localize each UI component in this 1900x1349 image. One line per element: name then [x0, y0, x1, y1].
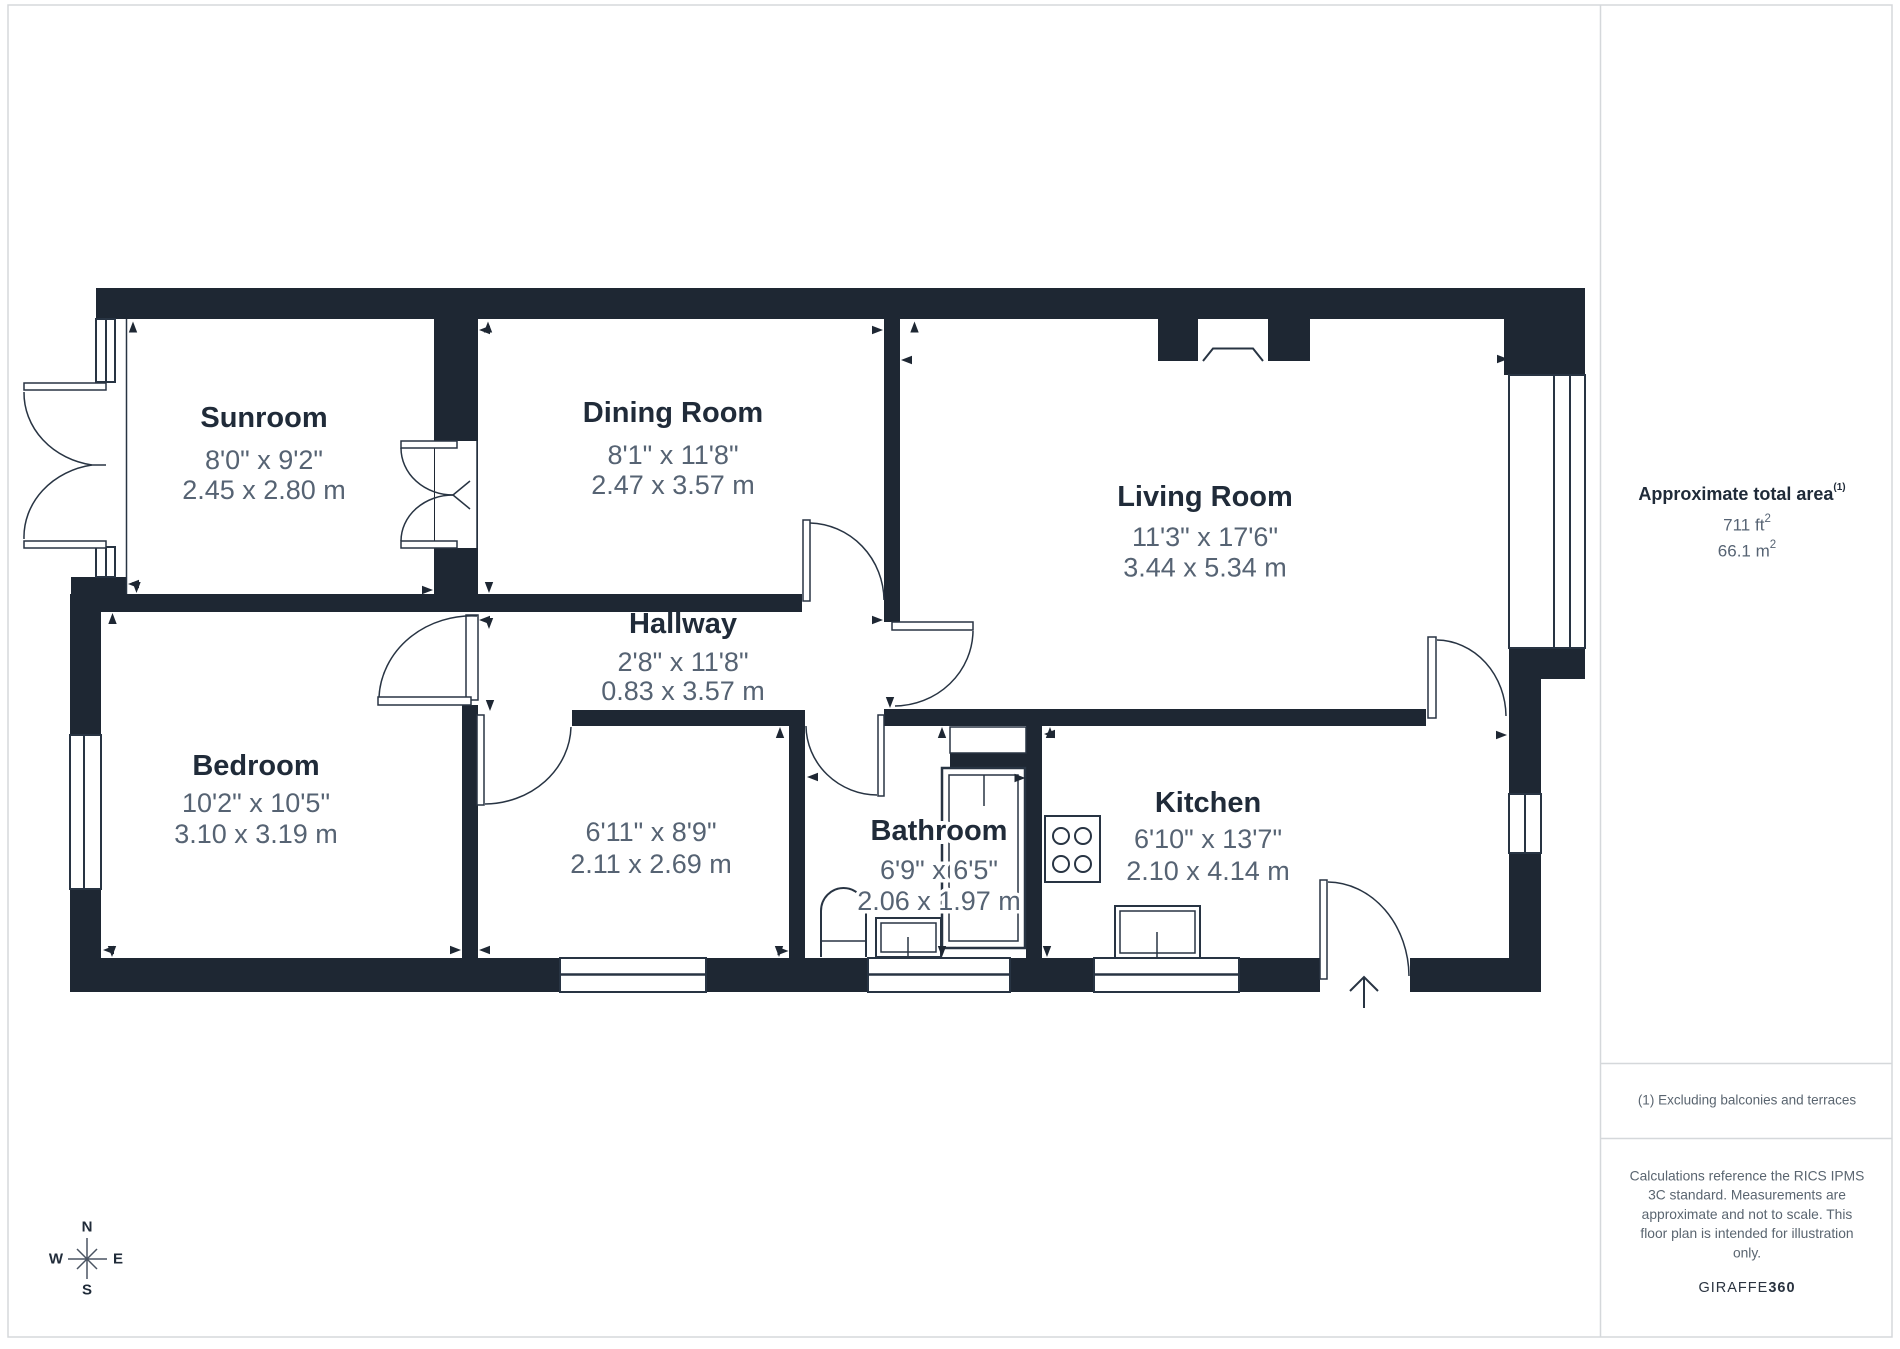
svg-text:66.1 m2: 66.1 m2	[1718, 539, 1776, 561]
svg-text:Approximate total area(1): Approximate total area(1)	[1638, 482, 1845, 505]
svg-text:8'1" x 11'8": 8'1" x 11'8"	[607, 440, 738, 470]
svg-text:Dining Room: Dining Room	[583, 397, 763, 429]
svg-text:Kitchen: Kitchen	[1155, 787, 1261, 819]
svg-text:GIRAFFE360: GIRAFFE360	[1698, 1280, 1795, 1296]
svg-text:2.47 x 3.57 m: 2.47 x 3.57 m	[591, 470, 755, 500]
svg-text:11'3" x 17'6": 11'3" x 17'6"	[1132, 522, 1278, 552]
svg-text:6'11" x 8'9": 6'11" x 8'9"	[585, 817, 716, 847]
svg-text:Calculations reference the RIC: Calculations reference the RICS IPMS	[1630, 1169, 1865, 1184]
svg-text:only.: only.	[1733, 1245, 1761, 1260]
svg-text:E: E	[113, 1251, 123, 1268]
svg-text:W: W	[49, 1251, 64, 1268]
svg-text:Sunroom: Sunroom	[200, 402, 327, 434]
svg-text:8'0" x 9'2": 8'0" x 9'2"	[205, 445, 323, 475]
svg-text:3.10 x 3.19 m: 3.10 x 3.19 m	[174, 819, 338, 849]
svg-text:S: S	[82, 1282, 92, 1299]
svg-text:2.06 x 1.97 m: 2.06 x 1.97 m	[857, 886, 1021, 916]
svg-text:3C standard. Measurements are: 3C standard. Measurements are	[1648, 1188, 1846, 1203]
svg-text:Living Room: Living Room	[1117, 481, 1293, 513]
svg-text:3.44 x 5.34 m: 3.44 x 5.34 m	[1123, 553, 1287, 583]
svg-text:approximate and not to scale.: approximate and not to scale. This	[1642, 1207, 1853, 1222]
svg-text:N: N	[82, 1219, 93, 1236]
svg-text:Bedroom: Bedroom	[192, 750, 319, 782]
svg-text:2'8" x 11'8": 2'8" x 11'8"	[617, 647, 748, 677]
svg-text:2.11 x 2.69 m: 2.11 x 2.69 m	[570, 849, 732, 879]
svg-text:2.10 x 4.14 m: 2.10 x 4.14 m	[1126, 856, 1290, 886]
svg-text:6'9" x 6'5": 6'9" x 6'5"	[880, 855, 998, 885]
svg-text:711 ft2: 711 ft2	[1723, 513, 1771, 535]
svg-text:(1) Excluding balconies and te: (1) Excluding balconies and terraces	[1638, 1093, 1857, 1108]
svg-text:Bathroom: Bathroom	[871, 815, 1008, 847]
svg-text:0.83 x 3.57 m: 0.83 x 3.57 m	[601, 676, 765, 706]
svg-text:Hallway: Hallway	[629, 608, 737, 640]
svg-text:10'2" x 10'5": 10'2" x 10'5"	[182, 788, 330, 818]
svg-text:6'10" x 13'7": 6'10" x 13'7"	[1134, 824, 1282, 854]
svg-text:floor plan is intended for ill: floor plan is intended for illustration	[1640, 1226, 1853, 1241]
svg-text:2.45 x 2.80 m: 2.45 x 2.80 m	[182, 475, 346, 505]
